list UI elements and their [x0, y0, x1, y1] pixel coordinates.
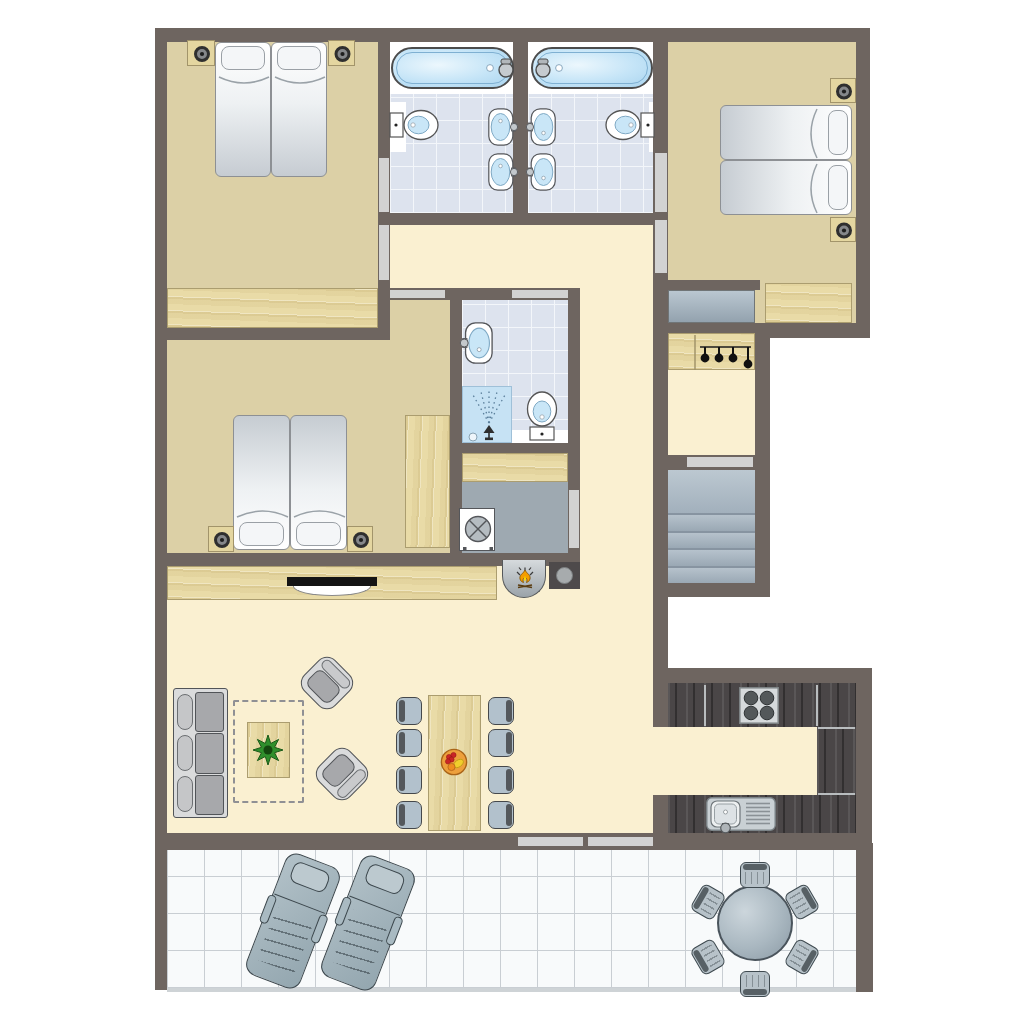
nightstand-TR-top-svg-circle: [842, 89, 846, 93]
faucet-icon: [499, 63, 513, 77]
bed-ML-1-svg: [234, 416, 291, 551]
washbasin-bathR-2: [528, 153, 556, 191]
washbasin-bathL-2-svg-circle: [499, 164, 503, 168]
sofa-i: [177, 776, 193, 812]
washbasin-bathL-1-svg-ellipse: [491, 114, 510, 141]
fruit-bowl-svg: [440, 748, 468, 776]
door-hall-laundry: [569, 490, 579, 548]
sofa-i: [195, 733, 224, 774]
shower-head-icon: [484, 425, 495, 433]
toilet-bathM-svg: [525, 389, 559, 441]
fruit-bowl: [440, 748, 468, 776]
toilet-bathM-svg-circle: [540, 415, 544, 419]
washbasin-bathR-1-svg-circle: [526, 123, 533, 130]
kitchen-sink-svg-circle: [724, 810, 728, 814]
shower-svg-g: [473, 390, 505, 423]
washbasin-bathR-2-svg-circle: [542, 176, 546, 180]
wall-east-upper: [856, 28, 870, 338]
stair-tread: [668, 513, 755, 531]
bathtub-left: [391, 47, 514, 89]
door-bedroomTR-bathR: [655, 153, 667, 212]
drain-icon: [556, 65, 563, 72]
washbasin-bathR-1-svg: [528, 108, 556, 146]
hooks-icon-circle: [745, 361, 752, 368]
log-box: [549, 562, 580, 589]
burners-icon-circle: [744, 706, 758, 720]
washbasin-bathR-2-svg: [528, 153, 556, 191]
door-bedroomTL-hall: [379, 225, 389, 280]
bathtub-right: [531, 47, 653, 89]
bed-TL-1-svg-path: [219, 77, 269, 83]
bathtub-right-svg: [533, 49, 655, 91]
nightstand-TR-bottom-svg: [831, 218, 857, 243]
dining-chair-L2: [396, 729, 422, 757]
shower-svg: [463, 387, 513, 444]
coat-rack-svg: [669, 334, 756, 371]
wall-kitchen-north: [653, 668, 872, 683]
dining-chair-L4-back: [399, 804, 405, 826]
shower-svg-g-path: [473, 395, 489, 423]
counter-seam-3: [818, 727, 855, 729]
bed-TL-2-svg: [272, 43, 328, 178]
bed-TL-1: [215, 42, 271, 177]
bed-TL-2: [271, 42, 327, 177]
washbasin-bathL-2-svg-ellipse: [491, 159, 510, 186]
drain-icon: [469, 433, 477, 441]
counter-seam-4: [818, 793, 855, 795]
door-bedroomTR-hall: [655, 220, 667, 273]
dining-chair-L4: [396, 801, 422, 829]
nightstand-TR-bottom: [830, 217, 856, 242]
nightstand-TL-right-svg-circle: [340, 52, 344, 56]
tv-screen-bar: [287, 577, 377, 586]
terrace-chair-bottom-back: [743, 989, 767, 995]
washbasin-bathR-1-svg-circle: [542, 131, 546, 135]
dining-chair-L3: [396, 766, 422, 794]
washbasin-bathL-1-svg-circle: [510, 123, 517, 130]
stair-tread: [668, 531, 755, 549]
stove-4-burners: [739, 687, 779, 724]
nightstand-TL-left-svg-circle: [200, 52, 204, 56]
bed-TR-1-svg-path: [811, 109, 817, 158]
potted-plant-svg-circle: [264, 746, 273, 755]
washbasin-bathL-1: [488, 108, 516, 146]
toilet-bathR-svg-circle: [646, 123, 649, 126]
sliding-door-terrace-right: [588, 837, 653, 846]
washbasin-bathR-1-svg-ellipse: [534, 114, 553, 141]
sofa-i: [177, 694, 193, 730]
bed-ML-2-svg: [291, 416, 348, 551]
washbasin-bathL-1-svg: [488, 108, 516, 146]
washbasin-bathM-svg-circle: [477, 348, 481, 352]
potted-plant-svg: [252, 734, 284, 766]
staircase: [668, 470, 755, 583]
dining-chair-R1: [488, 697, 514, 725]
nightstand-TL-right-svg: [329, 41, 356, 67]
nightstand-TL-left: [187, 40, 215, 66]
closet-shelf: [462, 453, 568, 482]
floor-plan: [0, 0, 1024, 1024]
hooks-icon-circle: [730, 355, 737, 362]
bed-ML-2-svg-path: [294, 511, 345, 517]
washbasin-bathM-svg: [462, 322, 493, 364]
washbasin-bathM: [462, 322, 493, 364]
bed-TR-2-svg-path: [811, 164, 817, 213]
nightstand-ML-left: [208, 526, 234, 552]
sofa-i: [195, 692, 224, 732]
door-bedroomTL-bathL: [379, 158, 389, 212]
toilet-bathL: [389, 108, 441, 142]
nightstand-ML-right-svg: [348, 527, 374, 553]
washbasin-bathL-2-svg: [488, 153, 516, 191]
bed-TR-2: [720, 160, 852, 215]
washing-machine-svg: [460, 509, 496, 552]
burners-icon-circle: [760, 706, 774, 720]
sofa-i: [177, 735, 193, 771]
sofa: [173, 688, 228, 818]
shower-svg-rect: [485, 438, 493, 441]
kitchen-sink: [706, 797, 776, 831]
toilet-bathL-svg-circle: [411, 123, 415, 127]
nightstand-TR-top: [830, 78, 856, 103]
bed-ML-2: [290, 415, 347, 550]
flame-icon-path: [518, 585, 532, 588]
washbasin-bathL-2: [488, 153, 516, 191]
wall-living-east-lower: [653, 795, 668, 833]
dining-chair-R2-back: [506, 732, 512, 754]
coat-rack: [668, 333, 755, 370]
kitchen-passage-floor: [653, 727, 668, 795]
stair-tread: [668, 566, 755, 584]
hallway-vertical-floor: [580, 288, 653, 565]
toilet-bathR: [603, 108, 655, 142]
stair-tread: [668, 548, 755, 566]
bed-TL-2-svg-path: [275, 77, 325, 83]
washbasin-bathR-2-svg-circle: [526, 168, 533, 175]
stair-landing: [668, 470, 755, 513]
nightstand-TR-bottom-svg-circle: [842, 228, 846, 232]
fireplace: [502, 560, 546, 598]
washbasin-bathM-svg-ellipse: [469, 328, 490, 358]
toilet-bathR-svg: [603, 108, 655, 142]
nightstand-ML-right: [347, 526, 373, 552]
wardrobe-ML: [405, 415, 450, 548]
orange-icon: [448, 763, 455, 770]
bedroom-middle-entry-floor: [390, 300, 450, 340]
drain-icon: [487, 65, 494, 72]
burners-icon-circle: [760, 691, 774, 705]
hooks-icon-circle: [716, 355, 723, 362]
terrace-round-table: [717, 885, 793, 961]
dining-chair-R2: [488, 729, 514, 757]
shower: [462, 386, 512, 443]
flame-icon: [517, 568, 533, 588]
nightstand-TL-right: [328, 40, 355, 66]
counter-seam-1: [704, 685, 706, 726]
wall-niche-north: [653, 280, 760, 290]
wall-kitchen-east: [856, 668, 872, 850]
bathtub-left-svg-rect: [501, 59, 511, 64]
washbasin-bathM-svg-circle: [460, 339, 468, 347]
shower-svg-g-path: [481, 392, 489, 423]
nightstand-ML-left-svg: [209, 527, 235, 553]
dining-chair-R4-back: [506, 804, 512, 826]
shower-svg-g-path: [489, 392, 497, 423]
hallway-upper-floor: [390, 224, 653, 288]
television: [287, 577, 377, 597]
potted-plant: [252, 734, 284, 766]
toilet-bathM: [525, 389, 559, 441]
wall-terrace-east: [856, 843, 873, 992]
log-box-svg-circle: [557, 568, 573, 584]
dining-chair-L1-back: [399, 700, 405, 722]
bathtub-right-svg-rect: [538, 59, 548, 64]
shower-svg-g-path: [489, 395, 505, 423]
tv-stand: [293, 586, 371, 596]
wardrobe-TR: [765, 283, 852, 323]
nightstand-TR-top-svg: [831, 79, 857, 104]
washing-machine-svg-rect: [463, 547, 467, 550]
dining-chair-R1-back: [506, 700, 512, 722]
dining-chair-L3-back: [399, 769, 405, 791]
wall-north: [155, 28, 870, 42]
washbasin-bathR-1: [528, 108, 556, 146]
bed-ML-1: [233, 415, 290, 550]
toilet-bathL-svg-circle: [394, 123, 397, 126]
terrace-chair-top: [740, 862, 770, 888]
washing-machine-svg-rect: [490, 547, 494, 550]
toilet-bathL-svg: [389, 108, 441, 142]
bed-ML-1-svg-path: [237, 511, 288, 517]
wall-stairs-south: [653, 583, 770, 597]
terrace-chair-bottom-slats: [745, 975, 765, 987]
washbasin-bathL-1-svg-circle: [499, 119, 503, 123]
washbasin-bathR-2-svg-ellipse: [534, 159, 553, 186]
stove-4-burners-svg-rect: [740, 688, 778, 723]
washing-machine: [459, 508, 495, 551]
bed-TL-1-svg: [216, 43, 272, 178]
nightstand-TL-left-svg: [188, 41, 216, 67]
wardrobe-TL: [167, 288, 378, 328]
bathtub-left-svg: [393, 49, 516, 91]
log-box-svg: [549, 562, 580, 589]
bed-TR-1: [720, 105, 852, 160]
toilet-bathR-svg-circle: [629, 123, 633, 127]
stove-4-burners-svg: [739, 687, 779, 724]
door-hall-bedroomML: [390, 290, 445, 298]
wall-bedroomTL-south: [155, 328, 390, 340]
dining-chair-R4: [488, 801, 514, 829]
terrace-chair-bottom: [740, 971, 770, 997]
door-hall-bathM: [512, 290, 568, 298]
entry-bench: [668, 290, 755, 323]
wall-bath-south: [378, 213, 668, 225]
wall-stairs-east: [755, 338, 770, 597]
washbasin-bathL-2-svg-circle: [510, 168, 517, 175]
hooks-icon-circle: [702, 355, 709, 362]
door-hall-stairs: [687, 457, 753, 467]
nightstand-ML-left-svg-circle: [220, 538, 224, 542]
kitchen-counter-east: [817, 727, 856, 795]
dining-chair-L2-back: [399, 732, 405, 754]
wall-corridor-east: [653, 42, 668, 727]
wall-south: [155, 833, 872, 850]
wall-bathM-south: [462, 443, 568, 453]
hooks-icon: [702, 347, 752, 367]
terrace-chair-top-slats: [745, 872, 765, 884]
faucet-icon: [721, 823, 731, 833]
bed-TR-1-svg: [721, 106, 853, 161]
burners-icon-circle: [744, 691, 758, 705]
fireplace-svg: [503, 560, 547, 598]
sofa-i: [195, 775, 224, 815]
dining-chair-R3: [488, 766, 514, 794]
berries-icon-circle: [445, 759, 450, 764]
bed-TR-2-svg: [721, 161, 853, 216]
terrace-chair-top-back: [743, 864, 767, 870]
sliding-door-terrace-left: [518, 837, 583, 846]
dining-chair-L1: [396, 697, 422, 725]
counter-seam-2: [816, 685, 818, 726]
nightstand-ML-right-svg-circle: [359, 538, 363, 542]
faucet-icon: [536, 63, 550, 77]
toilet-bathM-svg-circle: [540, 432, 543, 435]
kitchen-sink-svg: [706, 797, 776, 831]
dining-chair-R3-back: [506, 769, 512, 791]
